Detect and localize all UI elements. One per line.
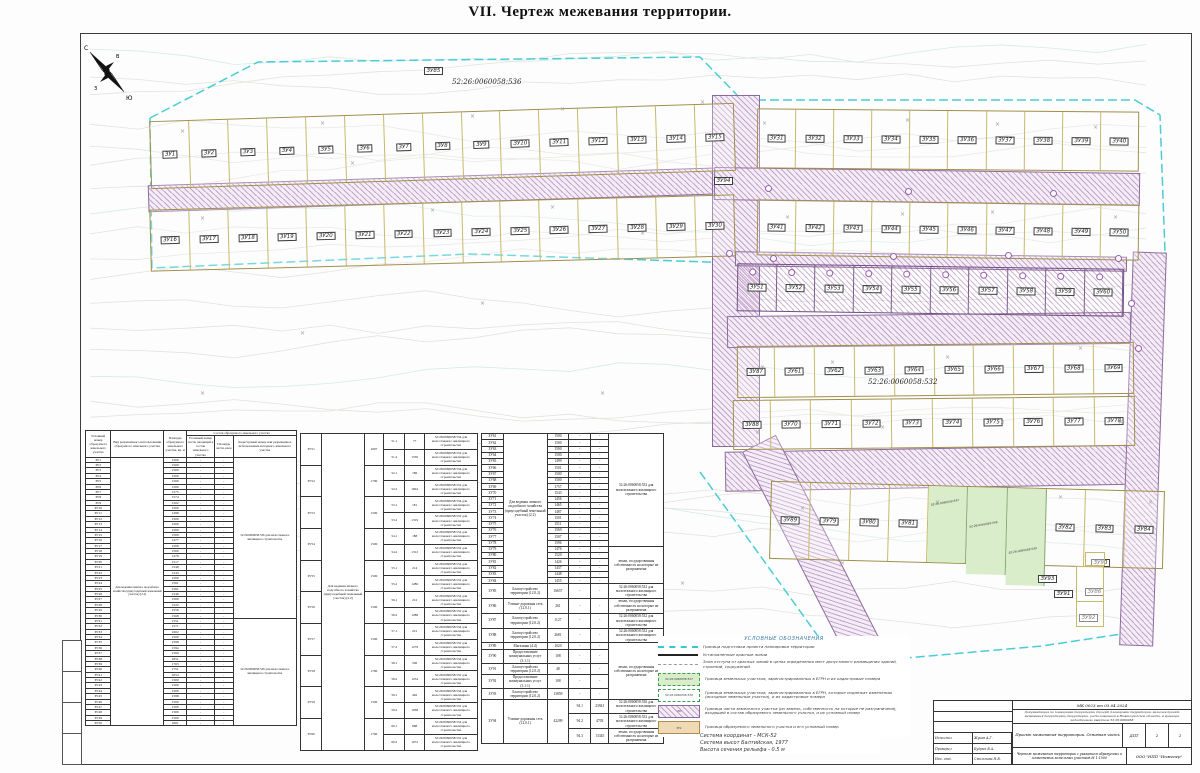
plot-label: ЗУ70 — [781, 420, 800, 428]
plot-label: ЗУ50 — [1110, 228, 1129, 236]
plot-area: 16657 — [547, 584, 569, 599]
stamp-description: Документация по планировке территории (п… — [1013, 710, 1191, 724]
small-plot-outline — [1085, 552, 1105, 566]
survey-cross-mark: × — [800, 505, 805, 512]
part-id: - — [569, 613, 591, 628]
plot-label: ЗУ23 — [433, 229, 452, 237]
plot-cell: ЗУ64 — [894, 345, 934, 395]
land-use: Благоустройство территории (12.0.2) — [503, 613, 547, 628]
plot-label: ЗУ18 — [238, 234, 257, 242]
land-use: Для ведения личного подсобного хозяйства… — [111, 457, 164, 726]
part-id: 94.2 — [569, 714, 591, 729]
plot-cell: ЗУ5 — [306, 116, 347, 183]
table-plots-51-60: ЗУ51Для ведения личного подсобного хозяй… — [300, 433, 478, 751]
source-cadastral: 52:26:0060058:536 для малоэтажного жилищ… — [609, 699, 664, 714]
plot-cell: ЗУ16 — [150, 210, 190, 271]
plot-cell: ЗУ24 — [462, 201, 502, 262]
plot-cell: ЗУ19 — [267, 207, 307, 268]
plot-cell: 52:26:0060058:547 — [927, 486, 968, 563]
source-cadastral: 52:26:0060058:534 для малоэтажного жилищ… — [424, 560, 477, 576]
part-id: 56.2 — [384, 608, 405, 624]
plot-id: ЗУ55 — [301, 560, 322, 592]
part-id: 94.1 — [569, 699, 591, 714]
data-table: ЗУ61Для ведения личного подсобного хозяй… — [481, 433, 664, 744]
survey-cross-mark: × — [200, 390, 205, 397]
plot-area: 2681 — [547, 628, 569, 643]
source-cadastral: 52:26:0060058:532 для малоэтажного жилищ… — [424, 481, 477, 497]
source-cadastral: 52:26:0060058:534 для малоэтажного жилищ… — [424, 718, 477, 734]
cadastral-number-532: 52:26:0060058:532 — [868, 378, 937, 386]
part-id: 57.1 — [384, 623, 405, 639]
land-use: Благоустройство территории (12.0.2) — [503, 689, 547, 699]
signature-empty-row — [934, 712, 1012, 723]
signature-row: Нач. отд.Смольнова Н.В. — [934, 754, 1012, 764]
part-id: 58.2 — [384, 671, 405, 687]
plot-label: ЗУ59 — [1055, 288, 1074, 296]
plot-cell: ЗУ80 — [849, 484, 890, 561]
plot-cell: ЗУ33 — [834, 110, 873, 168]
plot-cell: ЗУ70 — [771, 400, 812, 448]
land-use: Улично-дорожная сеть (12.0.1) — [503, 699, 547, 743]
signer-name: Жуков А.Г. — [973, 733, 1012, 743]
part-area: - — [591, 599, 609, 614]
signer-name: Будрин В.А. — [973, 744, 1012, 754]
plot-label: ЗУ88 — [743, 421, 762, 429]
plot-label: ЗУ58 — [1017, 287, 1036, 295]
part-area: 1038 — [405, 703, 424, 719]
plot-label: ЗУ54 — [863, 285, 882, 293]
stamp-drawing-title: Чертеж межевания территории с указанием … — [1013, 748, 1127, 764]
plot-cell: ЗУ2 — [189, 120, 230, 187]
plot-cell: ЗУ3 — [228, 119, 269, 186]
part-area: 1254 — [405, 671, 424, 687]
legend-swatch-offset — [658, 664, 698, 665]
plot-cell: ЗУ68 — [1054, 343, 1094, 393]
source-cadastral: 52:26:0060058:532 для малоэтажного жилищ… — [424, 576, 477, 592]
part-area: 1319 — [405, 513, 424, 529]
plot-cell: ЗУ15 — [695, 104, 735, 171]
plot-id: ЗУ51 — [301, 434, 322, 466]
plot-cell: ЗУ88 — [734, 401, 772, 449]
legend-item-label: Граница земельных участков, зарегистриро… — [705, 691, 910, 700]
plot-area: 1500 — [364, 497, 383, 529]
survey-cross-mark: × — [180, 128, 185, 135]
part-number-marker — [942, 271, 949, 278]
part-number-marker — [1019, 272, 1026, 279]
survey-cross-mark: × — [700, 99, 705, 106]
road-area — [1119, 252, 1167, 647]
plot-cell: ЗУ48 — [1024, 204, 1063, 259]
plot-id: ЗУ53 — [301, 497, 322, 529]
plot-cell: ЗУ32 — [796, 110, 835, 168]
part-area: 462 — [405, 687, 424, 703]
survey-note-line: Система высот Балтийская, 1977 — [700, 740, 880, 746]
plot-cell: ЗУ20 — [306, 206, 346, 267]
plot-label: ЗУ56 — [940, 286, 959, 294]
part-area: 688 — [405, 718, 424, 734]
plot-label: ЗУ53 — [824, 285, 843, 293]
part-area: 4703 — [591, 714, 609, 729]
plot-cell: ЗУ69 — [1094, 343, 1133, 393]
boundary-point-marker — [726, 250, 733, 257]
plot-area: 108 — [547, 649, 569, 664]
plot-id: ЗУ58 — [301, 655, 322, 687]
plot-label-zu94: ЗУ94 — [714, 177, 733, 185]
plot-cell: ЗУ87 — [738, 347, 776, 397]
plot-cell: ЗУ66 — [974, 344, 1014, 394]
legend-item-label: Граница образуемого земельного участка и… — [705, 725, 839, 729]
plot-label: ЗУ14 — [666, 134, 685, 143]
plot-strip: ЗУ41ЗУ42ЗУ43ЗУ44ЗУ45ЗУ46ЗУ47ЗУ48ЗУ49ЗУ50 — [757, 199, 1140, 260]
land-use: Для ведения личного подсобного хозяйства… — [322, 434, 364, 751]
plot-cell: ЗУ29 — [656, 196, 696, 257]
plot-cell: ЗУ21 — [345, 205, 385, 266]
survey-cross-mark: × — [600, 390, 605, 397]
plot-id: ЗУ50 — [86, 721, 111, 726]
survey-cross-mark: × — [900, 211, 905, 218]
source-cadastral: земли, государственная собственность на … — [609, 599, 664, 614]
land-use: Улично-дорожная сеть (12.0.1) — [503, 599, 547, 614]
legend-swatch-black — [658, 654, 698, 656]
land-use: Предоставление коммунальных услуг (3.1.1… — [503, 649, 547, 664]
stamp-company: ООО "НПП "Инженер" — [1127, 748, 1191, 764]
plot-id: ЗУ54 — [301, 528, 322, 560]
legend-item-label: Граница части земельного участка (из зем… — [705, 707, 910, 716]
plot-label: ЗУ73 — [903, 419, 922, 427]
plot-label: ЗУ80 — [859, 518, 878, 526]
plot-label: ЗУ4 — [279, 147, 295, 155]
plot-cell: ЗУ51 — [738, 264, 777, 311]
plot-label: ЗУ51 — [747, 283, 766, 291]
small-plot-outline — [1076, 601, 1104, 627]
plot-cell: ЗУ13 — [617, 106, 658, 173]
source-cadastral: земли, государственная собственность на … — [609, 643, 664, 700]
plot-area: 1500 — [364, 560, 383, 592]
part-id: 51.1 — [384, 434, 405, 450]
legend-item: Зона отступа от красных линий в целях оп… — [658, 660, 910, 669]
part-area: 221 — [405, 623, 424, 639]
plot-label: ЗУ8 — [435, 142, 451, 150]
part-id: - — [569, 649, 591, 664]
legend-title: УСЛОВНЫЕ ОБОЗНАЧЕНИЯ — [658, 636, 910, 642]
plot-label-zu91: ЗУ91 — [1054, 590, 1073, 598]
plot-cell: ЗУ39 — [1062, 112, 1101, 170]
plot-label: ЗУ62 — [825, 367, 844, 375]
plot-label: ЗУ55 — [901, 286, 920, 294]
part-number-marker — [826, 270, 833, 277]
part-id: 56.1 — [384, 592, 405, 608]
source-cadastral: 52:26:0060058:534 для малоэтажного жилищ… — [424, 434, 477, 450]
part-id: 55.1 — [384, 560, 405, 576]
plot-area: 1500 — [364, 528, 383, 560]
plot-label: ЗУ39 — [1072, 137, 1091, 145]
plot-label: ЗУ30 — [705, 222, 724, 230]
part-id: 52.2 — [384, 481, 405, 497]
land-use: Предоставление коммунальных услуг (3.1.1… — [503, 674, 547, 689]
source-cadastral: 52:26:0060058:534 для малоэтажного жилищ… — [424, 465, 477, 481]
part-id: 94.3 — [569, 729, 591, 744]
source-cadastral: 52:26:0060058:532 для малоэтажного жилищ… — [424, 671, 477, 687]
part-id: 60.1 — [384, 718, 405, 734]
legend-item: Граница подготовки проекта планировки те… — [658, 645, 910, 649]
part-id: 53.2 — [384, 513, 405, 529]
plot-id: ЗУ57 — [301, 623, 322, 655]
legend-swatch-text: 52:26:0060058:536 — [665, 693, 693, 697]
source-cadastral: 52:26:0060058:536 для малоэтажного жилищ… — [233, 457, 296, 618]
plot-label: ЗУ82 — [1056, 523, 1075, 531]
plot-label-zu85: ЗУ85 — [424, 67, 443, 75]
part-area: 214 — [405, 560, 424, 576]
plot-cell: ЗУ7 — [384, 114, 425, 181]
source-cadastral: 52:26:0060058:532 для малоэтажного жилищ… — [609, 584, 664, 599]
survey-cross-mark: × — [880, 424, 885, 431]
plot-label: ЗУ10 — [511, 139, 530, 148]
part-area: 181 — [405, 497, 424, 513]
plot-id: ЗУ60 — [301, 718, 322, 750]
plot-cell: ЗУ49 — [1062, 205, 1101, 260]
part-id: 59.1 — [384, 687, 405, 703]
plot-area: 1790 — [364, 465, 383, 497]
land-use: Благоустройство территории (12.0.2) — [503, 664, 547, 674]
plot-label: ЗУ46 — [958, 226, 977, 234]
plot-cell: ЗУ84 — [1124, 491, 1164, 568]
part-area: 188 — [405, 528, 424, 544]
plot-area: 108 — [547, 674, 569, 689]
plot-cell: ЗУ23 — [423, 202, 463, 263]
part-id: 51.2 — [384, 449, 405, 465]
survey-cross-mark: × — [1058, 494, 1063, 501]
part-number-marker — [788, 269, 795, 276]
cadastral-number-536: 52:26:0060058:536 — [452, 78, 521, 86]
part-id: 57.2 — [384, 639, 405, 655]
source-cadastral: 52:26:0060058:532 для малоэтажного жилищ… — [609, 434, 664, 547]
plot-label: ЗУ74 — [943, 419, 962, 427]
small-plot-outline — [1076, 566, 1104, 602]
part-area: 212 — [405, 592, 424, 608]
stamp-project-name: Проект межевания территории. Основная ча… — [1013, 724, 1123, 747]
part-area: - — [591, 689, 609, 699]
plot-cell: ЗУ4 — [267, 117, 308, 184]
plot-label: ЗУ31 — [767, 134, 786, 142]
plot-cell: ЗУ30 — [695, 195, 734, 256]
survey-cross-mark: × — [1000, 419, 1005, 426]
header-part-area: Площадь части, кв.м — [214, 436, 233, 458]
plot-strip-bottom: ЗУ89ЗУ79ЗУ80ЗУ8152:26:0060058:54752:26:0… — [769, 481, 1165, 569]
plot-label: ЗУ65 — [945, 366, 964, 374]
header-land-use: Вид разрешенного использования образуемо… — [111, 431, 164, 458]
plot-label: ЗУ41 — [767, 223, 786, 231]
plot-label: ЗУ37 — [996, 136, 1015, 144]
part-area: 506 — [405, 655, 424, 671]
plot-area: 1760 — [364, 718, 383, 750]
plot-cell: ЗУ35 — [910, 111, 949, 169]
source-cadastral: 52:26:0060058:530 для малоэтажного жилищ… — [233, 618, 296, 726]
plot-cell: ЗУ11 — [539, 109, 580, 176]
plot-cell: ЗУ17 — [189, 209, 229, 270]
plot-cell: ЗУ57 — [969, 268, 1008, 315]
plot-cell: ЗУ82 — [1045, 489, 1086, 566]
plot-area: 1500 — [364, 623, 383, 655]
stamp-stage: ДПТ — [1123, 724, 1146, 747]
legend-item-label: Установленные красные линии — [703, 653, 767, 657]
land-use: Для ведения личного подсобного хозяйства… — [503, 434, 547, 584]
plot-cell: ЗУ8 — [423, 112, 464, 179]
plot-label: ЗУ49 — [1072, 228, 1091, 236]
source-cadastral: 52:26:0060058:534 для малоэтажного жилищ… — [424, 623, 477, 639]
plot-cell: 52:26:0060058:549 — [1005, 488, 1047, 586]
plot-cell: ЗУ76 — [1013, 398, 1054, 446]
survey-cross-mark: × — [762, 120, 767, 127]
plot-label: ЗУ67 — [1024, 365, 1043, 373]
part-area: 1286 — [405, 576, 424, 592]
plot-id: ЗУ56 — [301, 592, 322, 624]
plot-id: ЗУ52 — [301, 465, 322, 497]
plot-cell: ЗУ22 — [384, 204, 424, 265]
plot-label: ЗУ57 — [978, 287, 997, 295]
source-cadastral: 52:26:0060058:534 для малоэтажного жилищ… — [424, 655, 477, 671]
signature-empty-row — [934, 701, 1012, 712]
boundary-point-marker — [770, 255, 777, 262]
source-cadastral: 52:26:0060058:532 для малоэтажного жилищ… — [424, 639, 477, 655]
part-area: 1312 — [405, 544, 424, 560]
plot-label: ЗУ3 — [240, 148, 256, 156]
plot-label: ЗУ69 — [1104, 364, 1123, 372]
plot-label: ЗУ32 — [805, 135, 824, 143]
boundary-point-marker — [1050, 190, 1057, 197]
plot-label: ЗУ81 — [899, 519, 918, 527]
plot-cell: ЗУ53 — [815, 265, 854, 312]
signer-role: Нач. отд. — [934, 754, 973, 764]
survey-cross-mark: × — [1148, 499, 1153, 506]
survey-cross-mark: × — [680, 580, 685, 587]
survey-cross-mark: × — [550, 204, 555, 211]
part-id: 59.2 — [384, 703, 405, 719]
plot-label: ЗУ6 — [357, 144, 373, 152]
source-cadastral: 52:26:0060058:534 для малоэтажного жилищ… — [424, 497, 477, 513]
plot-area: 1127 — [547, 613, 569, 628]
survey-cross-mark: × — [830, 359, 835, 366]
source-cadastral: 52:26:0060058:532 для малоэтажного жилищ… — [424, 544, 477, 560]
signature-table: ИсполнилЖуков А.Г.ПроверилБудрин В.А.Нач… — [934, 701, 1013, 764]
plot-cell: ЗУ52 — [776, 265, 815, 312]
part-id: 53.1 — [384, 497, 405, 513]
plot-cell: ЗУ77 — [1054, 397, 1095, 445]
signature-row: ИсполнилЖуков А.Г. — [934, 733, 1012, 744]
plot-cell: ЗУ79 — [809, 483, 850, 560]
plot-label: ЗУ17 — [199, 235, 218, 243]
green-parcel-cadastral: 52:26:0060058:549 — [1008, 546, 1037, 555]
plot-label: ЗУ84 — [1134, 525, 1153, 533]
plot-id: ЗУ88 — [482, 628, 504, 643]
plot-id: ЗУ87 — [482, 613, 504, 628]
plot-cell: ЗУ6 — [345, 115, 386, 182]
plot-id: ЗУ94 — [482, 699, 504, 743]
plot-label: ЗУ19 — [277, 233, 296, 241]
plot-cell: ЗУ42 — [796, 201, 835, 256]
legend-item: 52:26:0060058:547Граница земельных участ… — [658, 673, 910, 686]
plot-cell: ЗУ65 — [934, 345, 974, 395]
part-area: - — [591, 628, 609, 643]
part-id: - — [569, 584, 591, 599]
plot-cell: ЗУ12 — [578, 107, 619, 174]
land-use: Благоустройство территории (12.0.2) — [503, 628, 547, 643]
plot-label: ЗУ7 — [396, 143, 412, 151]
plot-cell: ЗУ60 — [1084, 269, 1123, 316]
legend-swatch-text: 52:26:0060058:547 — [665, 677, 693, 681]
survey-cross-mark: × — [640, 230, 645, 237]
survey-cross-mark: × — [755, 429, 760, 436]
plot-label: ЗУ43 — [843, 225, 862, 233]
plot-cell: ЗУ78 — [1094, 397, 1134, 445]
green-parcel-cadastral: 52:26:0060058:548 — [969, 520, 998, 529]
legend-item-label: Граница земельных участков, зарегистриро… — [705, 677, 880, 681]
survey-cross-mark: × — [320, 120, 325, 127]
part-area: - — [214, 721, 233, 726]
legend-item: :59:Граница части земельного участка (из… — [658, 705, 910, 718]
plot-area: 261 — [547, 599, 569, 614]
plot-cell: ЗУ56 — [930, 267, 969, 314]
header-part-id: Условный номер части, входящей в состав … — [187, 436, 214, 458]
plot-label: ЗУ9 — [474, 141, 490, 149]
plot-label: ЗУ11 — [550, 138, 569, 147]
plot-label: ЗУ1 — [162, 150, 178, 158]
plot-label: ЗУ77 — [1064, 417, 1083, 425]
plot-cell: ЗУ14 — [656, 105, 697, 172]
plot-label: ЗУ42 — [805, 224, 824, 232]
source-cadastral: 52:26:0060058:532 для малоэтажного жилищ… — [424, 734, 477, 750]
source-cadastral: 52:26:0060058:532 для малоэтажного жилищ… — [424, 608, 477, 624]
plot-cell: ЗУ71 — [811, 400, 852, 448]
plot-area: 1601 — [164, 721, 187, 726]
plot-label: ЗУ68 — [1064, 364, 1083, 372]
legend-swatch-white: 52:26:0060058:536 — [658, 689, 700, 702]
plot-cell: ЗУ58 — [1007, 268, 1046, 315]
part-id: 52.1 — [384, 465, 405, 481]
plot-label: ЗУ89 — [781, 516, 800, 524]
part-area: 13345 — [591, 729, 609, 744]
plot-label: ЗУ40 — [1110, 137, 1129, 145]
part-id: 60.2 — [384, 734, 405, 750]
plot-cell: ЗУ72 — [852, 399, 893, 447]
part-area: 1288 — [405, 608, 424, 624]
part-number-marker — [1057, 273, 1064, 280]
boundary-point-marker — [890, 253, 897, 260]
signer-role: Проверил — [934, 744, 973, 754]
plot-id: ЗУ90 — [482, 649, 504, 664]
part-area: 186 — [405, 465, 424, 481]
plot-cell: ЗУ55 — [892, 266, 931, 313]
plot-label: ЗУ47 — [996, 227, 1015, 235]
plot-cell: ЗУ43 — [834, 201, 873, 256]
source-cadastral: 52:26:0060058:534 для малоэтажного жилищ… — [424, 592, 477, 608]
plot-id: ЗУ91 — [482, 664, 504, 674]
legend-swatch-text: ЗУ1 — [676, 726, 681, 730]
boundary-point-marker — [765, 185, 772, 192]
part-number-marker — [980, 272, 987, 279]
plot-cell: ЗУ67 — [1014, 344, 1054, 394]
boundary-point-marker — [1128, 300, 1135, 307]
plot-area: 1760 — [364, 655, 383, 687]
signer-name: Смольнова Н.В. — [973, 754, 1012, 764]
survey-cross-mark: × — [945, 354, 950, 361]
plot-area: 48 — [547, 664, 569, 674]
legend: УСЛОВНЫЕ ОБОЗНАЧЕНИЯ Граница подготовки … — [658, 636, 910, 737]
part-area: - — [591, 613, 609, 628]
survey-cross-mark: × — [430, 207, 435, 214]
survey-cross-mark: × — [350, 160, 355, 167]
plot-label: ЗУ20 — [316, 232, 335, 240]
stamp-sheet-number: 2 — [1146, 724, 1169, 747]
